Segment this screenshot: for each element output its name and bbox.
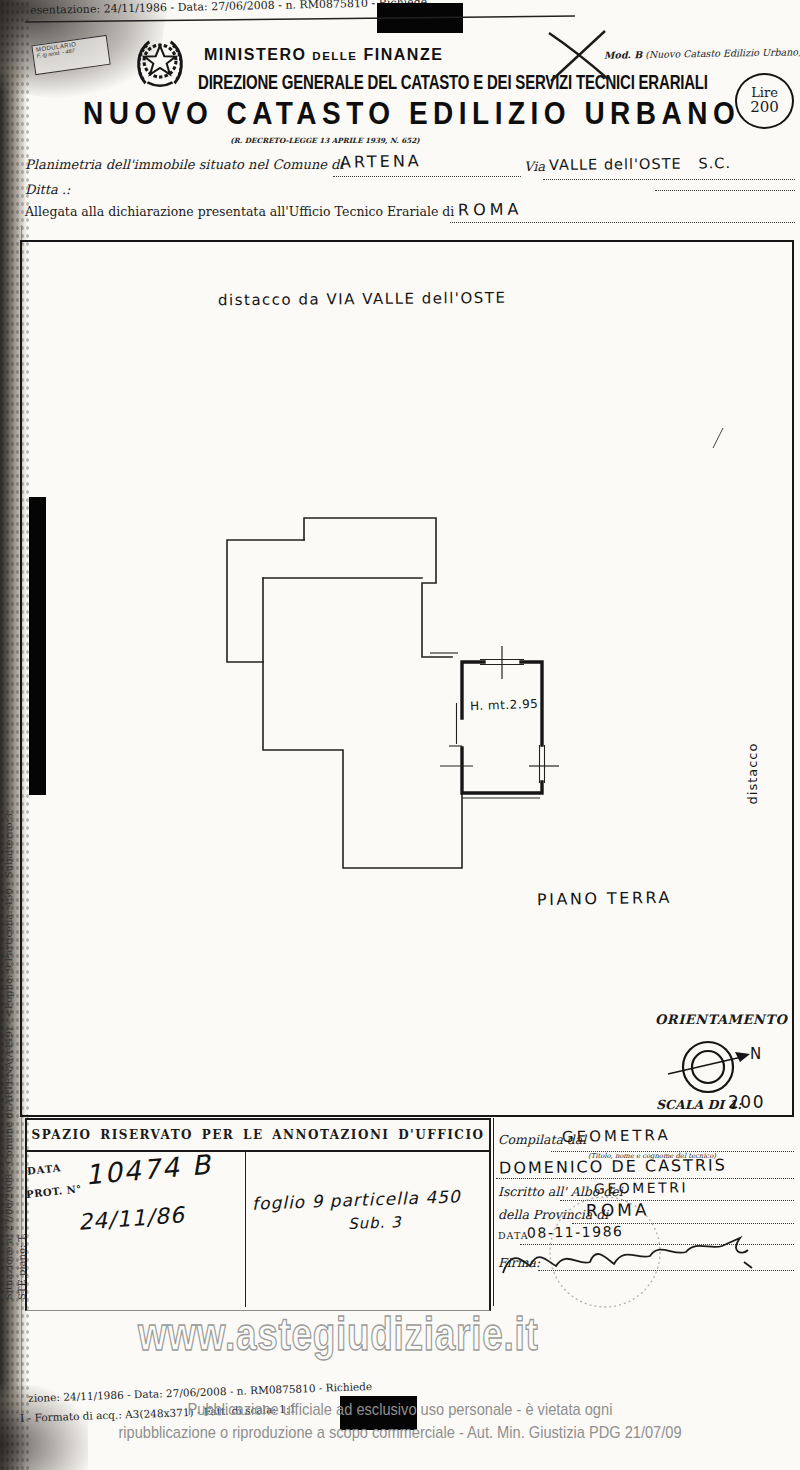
via-label: Via xyxy=(524,159,545,174)
province-value: ROMA xyxy=(586,1199,650,1220)
mod-b-label: Mod. B (Nuovo Catasto Edilizio Urbano) xyxy=(604,46,800,60)
via-value: VALLE dell'OSTE S.C. xyxy=(549,155,731,173)
lire-stamp: Lire 200 xyxy=(735,73,794,129)
annotations-divider xyxy=(245,1150,246,1307)
decree-subtitle: (R. DECRETO-LEGGE 13 APRILE 1939, N. 652… xyxy=(160,136,490,145)
comune-label: Planimetria dell'immobile situato nel Co… xyxy=(25,157,344,172)
albo-value: GEOMETRI xyxy=(594,1179,688,1196)
ministry-line: MINISTERO DELLE FINANZE xyxy=(204,46,443,64)
distacco-side-label: distacco xyxy=(745,734,760,814)
dotted-line xyxy=(543,179,795,180)
ufficio-value: ROMA xyxy=(458,199,523,219)
annotations-header: SPAZIO RISERVATO PER LE ANNOTAZIONI D'UF… xyxy=(27,1120,489,1152)
legal-line2: ripubblicazione o riproduzione a scopo c… xyxy=(56,1421,744,1444)
page-title: NUOVO CATASTO EDILIZIO URBANO xyxy=(83,96,740,131)
dotted-line xyxy=(655,190,795,191)
dotted-line xyxy=(520,1244,794,1245)
scale-value: 200 xyxy=(728,1092,765,1112)
watermark: www.astegiudiziarie.it xyxy=(137,1308,538,1360)
orientation-title: ORIENTAMENTO xyxy=(655,1012,787,1027)
watermark-group: www.astegiudiziarie.it xyxy=(137,1308,538,1360)
side-text-long: Situazione al 27/06/2008 - Comune di ART… xyxy=(3,813,14,1300)
mod-b-rest: (Nuovo Catasto Edilizio Urbano) xyxy=(642,46,800,60)
dotted-line xyxy=(496,1178,794,1179)
direction-line: DIREZIONE GENERALE DEL CATASTO E DEI SER… xyxy=(198,71,708,93)
parcel-sub: Sub. 3 xyxy=(348,1213,402,1233)
dotted-line xyxy=(333,176,521,177)
technician-name: DOMENICO DE CASTRIS xyxy=(499,1155,727,1177)
compiler-date-value: 08-11-1986 xyxy=(527,1223,624,1241)
legal-line1: Pubblicazione ufficiale ad esclusivo uso… xyxy=(56,1398,744,1421)
ministry-word-3: FINANZE xyxy=(364,46,444,63)
floor-label: PIANO TERRA xyxy=(537,888,672,909)
lire-amount: 200 xyxy=(750,100,779,116)
dotted-line xyxy=(450,222,795,223)
plan-note: distacco da VIA VALLE dell'OSTE xyxy=(218,289,507,310)
comune-value: ARTENA xyxy=(340,151,422,171)
redaction-bar-top xyxy=(377,3,463,33)
drawing-frame xyxy=(20,240,794,1117)
compiler-separator xyxy=(493,1118,494,1306)
compiler-date-label: DATA xyxy=(498,1230,529,1241)
mod-b-bold: Mod. B xyxy=(604,49,642,61)
side-text-short: STE piano: T, xyxy=(16,1233,27,1300)
redaction-bar-left xyxy=(29,497,46,795)
scanned-cadastral-document: esentazione: 24/11/1986 - Data: 27/06/20… xyxy=(0,0,800,1470)
compiled-value: GEOMETRA xyxy=(562,1126,671,1146)
room-height-label: H. mt.2.95 xyxy=(470,697,539,713)
firma-label: Firma: xyxy=(498,1255,540,1270)
ditta-label: Ditta .: xyxy=(25,182,70,197)
ministry-word-2: DELLE xyxy=(312,50,357,62)
ufficio-label: Allegata alla dichiarazione presentata a… xyxy=(25,204,454,219)
dotted-line xyxy=(538,1270,794,1271)
north-label: N xyxy=(750,1045,761,1063)
italy-emblem-icon xyxy=(131,33,189,91)
scan-header-line: esentazione: 24/11/1986 - Data: 27/06/20… xyxy=(30,0,427,17)
ministry-word-1: MINISTERO xyxy=(204,46,306,63)
